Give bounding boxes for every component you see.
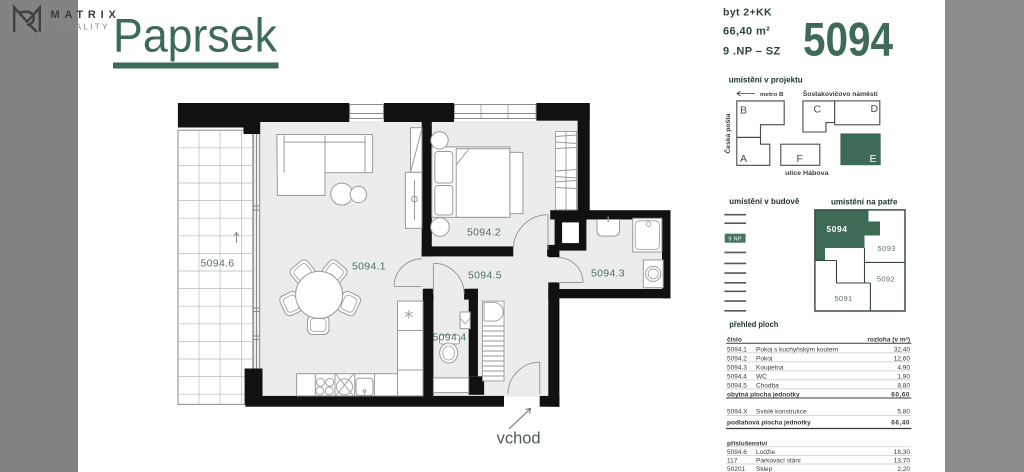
svg-text:obytná plocha jednotky: obytná plocha jednotky (727, 391, 800, 398)
svg-text:byt 2+KK: byt 2+KK (723, 7, 772, 19)
svg-text:Koupelna: Koupelna (756, 364, 784, 371)
svg-text:5094.3: 5094.3 (591, 268, 625, 280)
svg-text:5093: 5093 (878, 244, 896, 253)
svg-text:5094.1: 5094.1 (352, 261, 386, 273)
svg-text:B: B (740, 105, 747, 117)
svg-text:přehled ploch: přehled ploch (729, 319, 778, 329)
svg-text:Parkovací stání: Parkovací stání (756, 457, 801, 464)
svg-text:metro B: metro B (760, 92, 784, 98)
svg-text:Šostakovičovo náměstí: Šostakovičovo náměstí (803, 90, 878, 98)
svg-text:5094.5: 5094.5 (468, 270, 502, 282)
svg-text:2,20: 2,20 (897, 466, 910, 472)
svg-text:Paprsek: Paprsek (113, 9, 277, 62)
svg-text:117: 117 (727, 457, 738, 464)
svg-text:50201: 50201 (727, 466, 745, 472)
svg-text:5094.4: 5094.4 (433, 332, 467, 344)
svg-text:32,40: 32,40 (894, 346, 911, 353)
svg-text:E: E (870, 153, 877, 165)
svg-text:ulice Hábova: ulice Hábova (785, 170, 829, 177)
svg-text:číslo: číslo (727, 337, 742, 344)
svg-text:F: F (797, 153, 803, 165)
svg-text:5094.X: 5094.X (727, 408, 748, 415)
svg-text:5094.1: 5094.1 (727, 346, 747, 353)
svg-text:5094.3: 5094.3 (727, 364, 747, 371)
svg-text:REALITY: REALITY (60, 22, 110, 32)
svg-text:umístění v projektu: umístění v projektu (729, 75, 803, 85)
svg-text:5094: 5094 (803, 13, 893, 66)
svg-text:MATRIX: MATRIX (51, 9, 121, 21)
svg-text:5094.2: 5094.2 (467, 227, 501, 239)
svg-text:18,30: 18,30 (894, 449, 911, 456)
svg-text:Česká pošta: Česká pošta (725, 113, 732, 154)
svg-text:5094.2: 5094.2 (727, 355, 747, 362)
svg-text:Chodba: Chodba (756, 382, 779, 389)
svg-text:9 NP: 9 NP (728, 237, 741, 243)
svg-text:umístění v budově: umístění v budově (729, 196, 799, 206)
svg-text:rozloha (v m²): rozloha (v m²) (867, 337, 910, 344)
svg-text:Svislé konstrukce: Svislé konstrukce (756, 408, 807, 415)
svg-text:příslušenství: příslušenství (727, 440, 767, 447)
svg-text:5091: 5091 (834, 294, 852, 303)
svg-text:podlahová plocha jednotky: podlahová plocha jednotky (727, 419, 811, 426)
svg-text:66,40 m²: 66,40 m² (723, 26, 770, 38)
svg-text:Pokoj: Pokoj (756, 355, 772, 362)
svg-text:66,40: 66,40 (891, 419, 910, 426)
svg-text:D: D (871, 103, 879, 115)
svg-text:5,80: 5,80 (897, 408, 910, 415)
svg-text:9 .NP – SZ: 9 .NP – SZ (723, 46, 781, 58)
svg-text:5094.6: 5094.6 (727, 449, 747, 456)
svg-text:1,90: 1,90 (897, 373, 910, 380)
svg-text:A: A (740, 153, 747, 165)
svg-text:vchod: vchod (497, 430, 541, 448)
svg-text:C: C (814, 104, 822, 116)
svg-text:WC: WC (756, 373, 767, 380)
svg-text:umístění na patře: umístění na patře (831, 197, 898, 207)
svg-text:5094: 5094 (827, 224, 848, 234)
svg-text:Pokoj s kuchyňským koutem: Pokoj s kuchyňským koutem (756, 346, 838, 353)
svg-text:Sklep: Sklep (756, 466, 773, 472)
svg-text:5094.6: 5094.6 (201, 258, 235, 270)
svg-text:5092: 5092 (877, 275, 895, 284)
svg-text:5094.4: 5094.4 (727, 373, 747, 380)
svg-text:13,70: 13,70 (894, 457, 911, 464)
svg-text:5094.5: 5094.5 (727, 382, 747, 389)
svg-text:8,80: 8,80 (897, 382, 910, 389)
svg-text:60,60: 60,60 (891, 391, 910, 398)
svg-text:12,60: 12,60 (894, 355, 911, 362)
svg-text:4,90: 4,90 (897, 364, 910, 371)
svg-text:Lodžie: Lodžie (756, 449, 776, 456)
